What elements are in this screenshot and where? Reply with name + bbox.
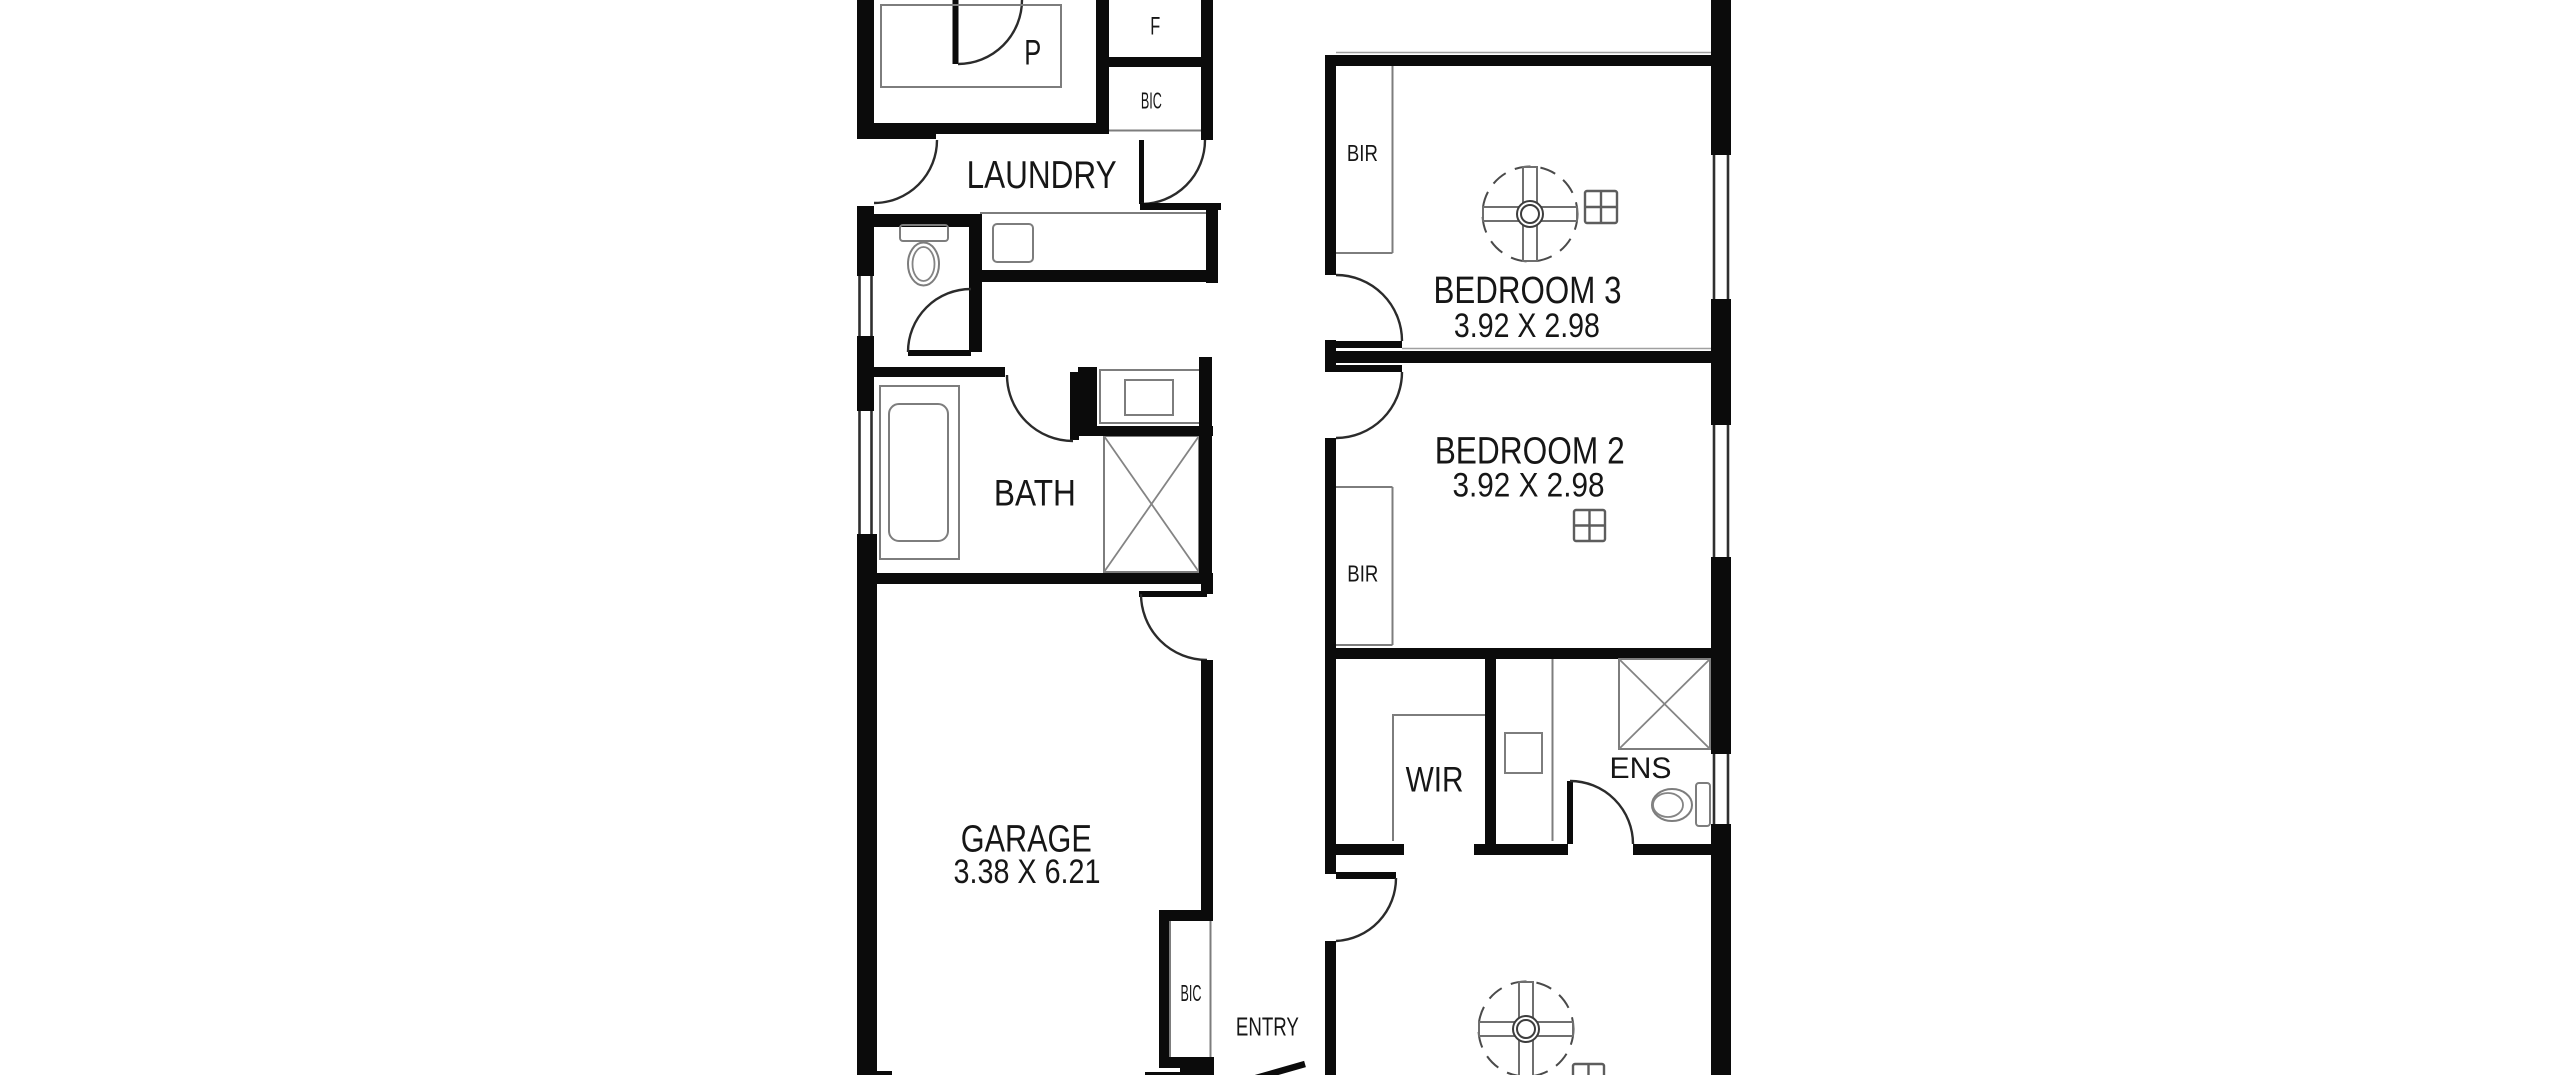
svg-text:ENTRY: ENTRY	[1236, 1012, 1299, 1042]
svg-text:3.92 X 2.98: 3.92 X 2.98	[1454, 307, 1600, 345]
svg-text:BIR: BIR	[1347, 560, 1378, 586]
svg-text:BIC: BIC	[1141, 88, 1162, 114]
svg-text:BIC: BIC	[1181, 980, 1202, 1006]
svg-text:BIR: BIR	[1347, 140, 1378, 166]
svg-text:BEDROOM 3: BEDROOM 3	[1434, 270, 1622, 312]
svg-text:3.38 X 6.21: 3.38 X 6.21	[954, 853, 1101, 891]
svg-text:F: F	[1150, 12, 1160, 40]
svg-text:ENS: ENS	[1610, 752, 1672, 785]
svg-text:P: P	[1024, 34, 1041, 73]
svg-text:LAUNDRY: LAUNDRY	[967, 154, 1117, 197]
svg-text:BATH: BATH	[994, 472, 1076, 513]
svg-text:WIR: WIR	[1406, 761, 1464, 800]
svg-text:3.92 X 2.98: 3.92 X 2.98	[1453, 467, 1605, 505]
